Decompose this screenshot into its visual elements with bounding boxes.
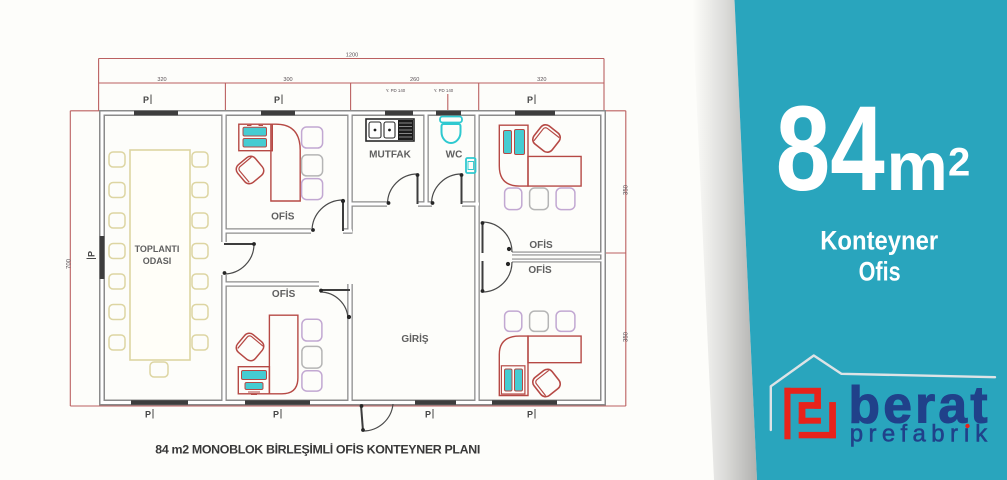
- svg-text:300: 300: [283, 77, 292, 83]
- svg-text:Y. PD 140: Y. PD 140: [434, 88, 454, 93]
- svg-text:WC: WC: [446, 150, 463, 161]
- svg-text:84: 84: [776, 81, 885, 216]
- svg-text:320: 320: [537, 77, 546, 83]
- svg-text:OFİS: OFİS: [272, 287, 296, 300]
- svg-text:TOPLANTI: TOPLANTI: [135, 244, 180, 254]
- svg-text:260: 260: [410, 77, 419, 83]
- svg-text:350: 350: [624, 184, 630, 195]
- svg-text:P: P: [425, 410, 431, 420]
- svg-text:1200: 1200: [346, 53, 358, 59]
- svg-text:OFİS: OFİS: [529, 238, 553, 251]
- svg-text:P: P: [87, 251, 97, 257]
- svg-text:ODASI: ODASI: [143, 256, 172, 266]
- svg-text:m: m: [887, 128, 948, 205]
- svg-text:P: P: [143, 95, 149, 105]
- svg-text:320: 320: [157, 77, 166, 83]
- svg-text:P: P: [527, 95, 533, 105]
- svg-text:Konteyner: Konteyner: [820, 225, 938, 255]
- svg-text:84 m2 MONOBLOK BİRLEŞİMLİ OFİS: 84 m2 MONOBLOK BİRLEŞİMLİ OFİS KONTEYNER…: [155, 442, 480, 457]
- svg-text:OFİS: OFİS: [271, 210, 295, 223]
- svg-text:P: P: [145, 410, 151, 420]
- svg-text:MUTFAK: MUTFAK: [369, 150, 411, 161]
- svg-text:P: P: [274, 95, 280, 105]
- svg-text:GİRİŞ: GİRİŞ: [401, 332, 429, 345]
- svg-text:Y. PD 140: Y. PD 140: [386, 88, 406, 93]
- svg-text:P: P: [273, 410, 279, 420]
- svg-text:350: 350: [624, 331, 630, 342]
- svg-text:OFİS: OFİS: [528, 263, 552, 276]
- svg-text:Ofis: Ofis: [859, 257, 901, 287]
- svg-text:2: 2: [948, 141, 970, 185]
- svg-text:700: 700: [67, 258, 73, 269]
- svg-text:P: P: [527, 410, 533, 420]
